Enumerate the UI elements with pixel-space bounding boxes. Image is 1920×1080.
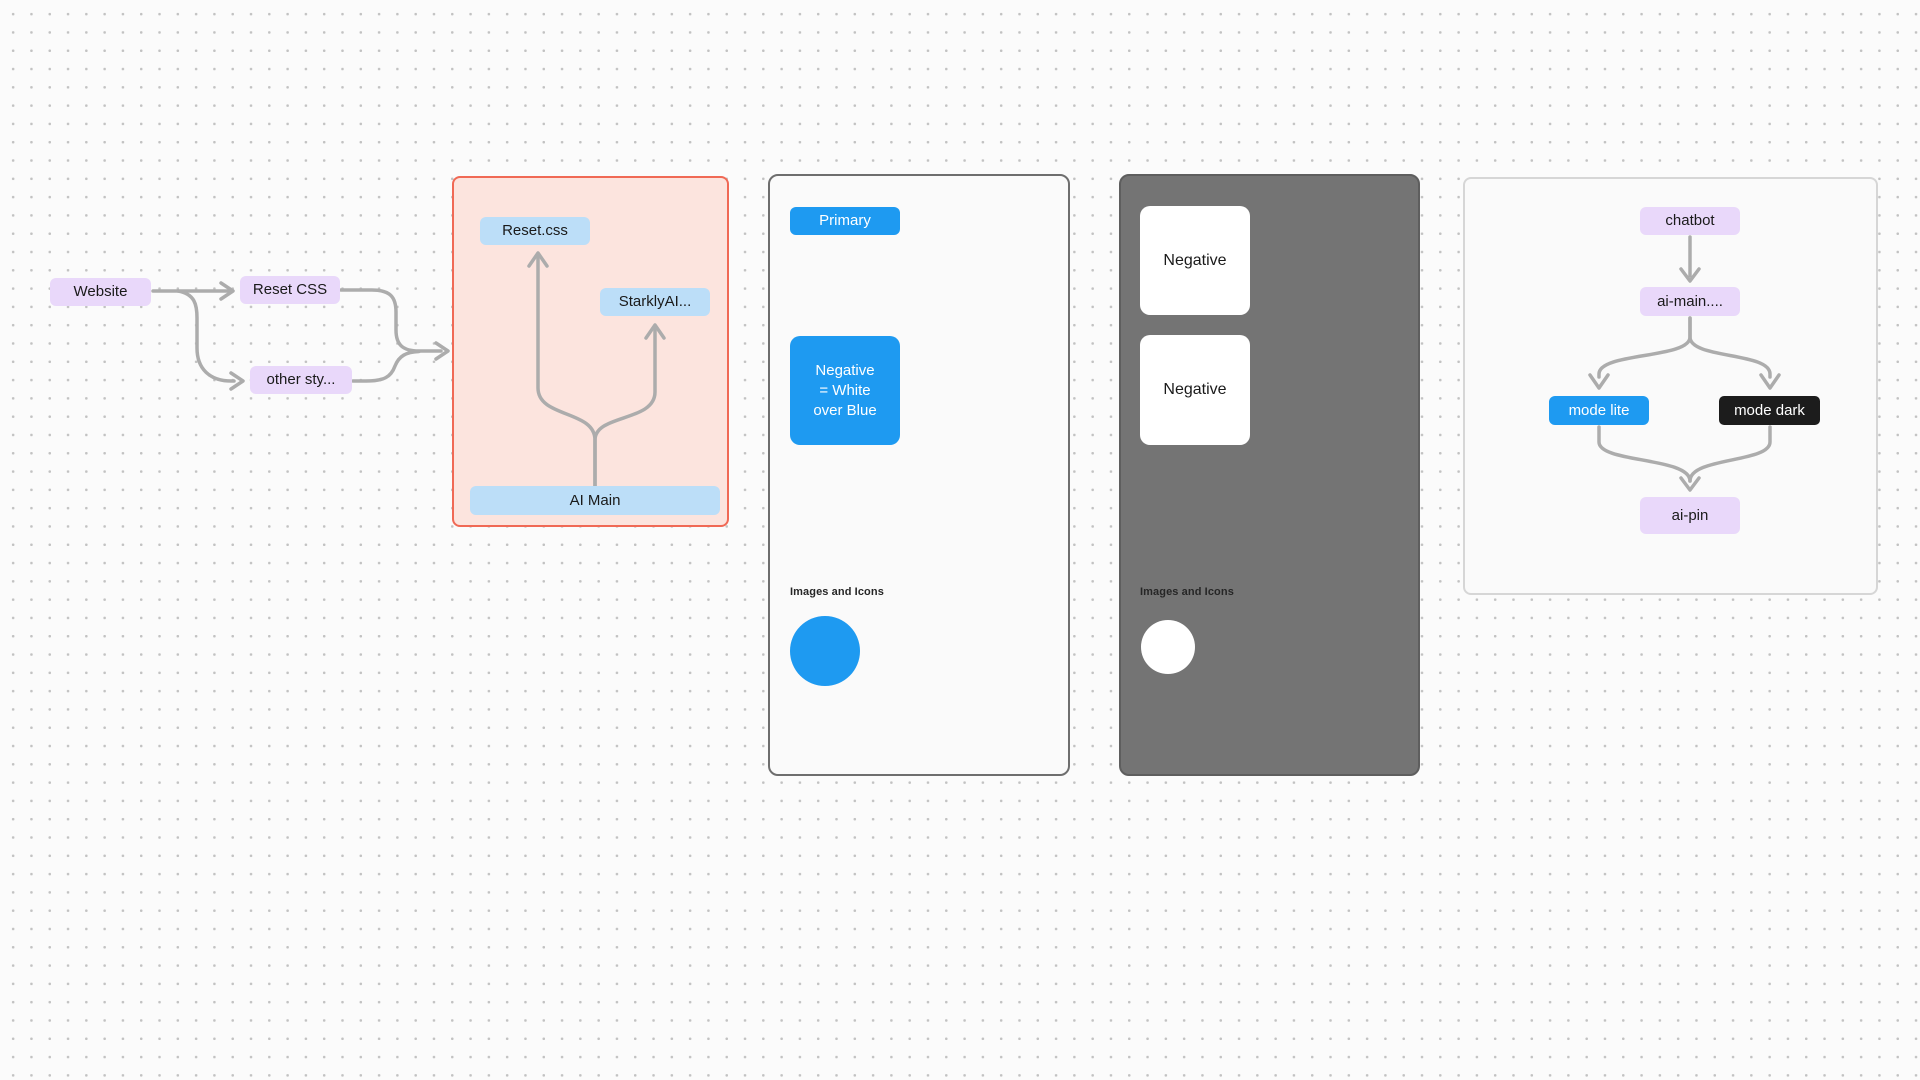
primary-button-label: Primary [819,211,871,231]
negative-blue-block-label: Negative = White over Blue [813,361,876,421]
node-mode-lite[interactable]: mode lite [1549,396,1649,425]
negative-white-block-bottom[interactable]: Negative [1140,335,1250,445]
node-ai-pin-label: ai-pin [1672,506,1709,526]
negative-white-block-top-label: Negative [1163,251,1226,271]
node-other-styles[interactable]: other sty... [250,366,352,394]
node-ai-main-bar[interactable]: AI Main [470,486,720,515]
connector-website-to-otherstyles[interactable] [178,291,243,389]
node-chatbot-label: chatbot [1665,211,1714,231]
node-starkly-ai[interactable]: StarklyAI... [600,288,710,316]
whiteboard-canvas[interactable]: Website Reset CSS other sty... Reset.css… [0,0,1920,1080]
node-mode-dark[interactable]: mode dark [1719,396,1820,425]
node-reset-css[interactable]: Reset CSS [240,276,340,304]
node-reset-css-file-label: Reset.css [502,221,568,241]
negative-blue-block[interactable]: Negative = White over Blue [790,336,900,445]
connector-website-to-resetcss[interactable] [153,283,233,299]
negative-white-block-bottom-label: Negative [1163,380,1226,400]
node-mode-lite-label: mode lite [1569,401,1630,421]
node-other-styles-label: other sty... [267,370,336,390]
node-ai-main-bar-label: AI Main [570,491,621,511]
connector-otherstyles-to-frame[interactable] [353,343,448,381]
images-icons-label-dark: Images and Icons [1140,586,1234,598]
node-ai-pin[interactable]: ai-pin [1640,497,1740,534]
light-theme-frame[interactable] [768,174,1070,776]
images-icons-label-light: Images and Icons [790,586,884,598]
node-ai-main-label: ai-main.... [1657,292,1723,312]
negative-white-block-top[interactable]: Negative [1140,206,1250,315]
node-reset-css-label: Reset CSS [253,280,327,300]
node-starkly-ai-label: StarklyAI... [619,292,692,312]
node-ai-main[interactable]: ai-main.... [1640,287,1740,316]
white-circle-image[interactable] [1141,620,1195,674]
node-reset-css-file[interactable]: Reset.css [480,217,590,245]
node-chatbot[interactable]: chatbot [1640,207,1740,235]
node-website[interactable]: Website [50,278,151,306]
primary-button-swatch[interactable]: Primary [790,207,900,235]
node-website-label: Website [74,282,128,302]
node-mode-dark-label: mode dark [1734,401,1805,421]
connector-resetcss-to-frame[interactable] [341,290,441,351]
blue-circle-image[interactable] [790,616,860,686]
